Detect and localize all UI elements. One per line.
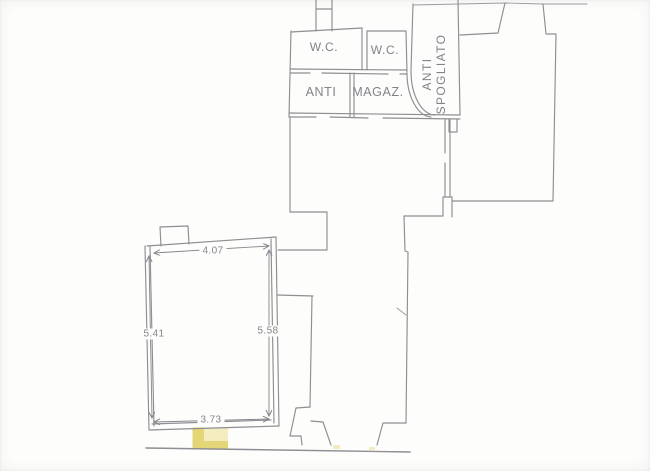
dimension-label-left-height: 5.41	[140, 329, 167, 340]
highlight-speck-right	[369, 447, 375, 450]
corridor-left-foot	[290, 407, 310, 445]
wc-divider-wall	[362, 28, 367, 70]
right-wing-chimney-left	[460, 3, 505, 35]
wc-left-top-wall	[291, 28, 362, 32]
spogliato-left-wall	[411, 4, 413, 70]
top-boundary-line	[413, 3, 587, 5]
room-label-magaz: MAGAZ.	[352, 85, 404, 99]
spogliato-right-wall	[458, 0, 460, 115]
door-swing-tick	[397, 308, 406, 315]
dimension-label-top-width: 4.07	[199, 246, 226, 257]
scanned-floor-plan: W.C. W.C. ANTI MAGAZ. ANTI SPOGLIATO 4.0…	[0, 0, 650, 471]
central-bottom-step	[278, 212, 327, 250]
dimension-label-bottom-width: 3.73	[197, 415, 224, 426]
cluster-left-wall	[289, 31, 291, 117]
floor-plan-drawing	[0, 0, 650, 471]
room-label-wc-left: W.C.	[310, 40, 338, 54]
corridor-left-wall	[277, 295, 313, 407]
entrance-highlight-glare	[204, 428, 228, 442]
highlight-speck-left	[333, 445, 340, 449]
room-label-anti: ANTI	[306, 85, 337, 99]
wc-bottom-wall	[290, 69, 407, 74]
room-label-anti-spogliato-line1: ANTI	[420, 34, 434, 115]
entrance-highlight	[193, 428, 376, 451]
corridor-left-foot-inner	[311, 421, 331, 445]
top-chimney-notch	[316, 0, 332, 31]
room-label-wc-right: W.C.	[371, 43, 399, 57]
room-label-anti-spogliato-line2: SPOGLIATO	[434, 34, 448, 115]
central-room-walls	[278, 117, 450, 250]
right-wing-step-wall	[404, 197, 452, 216]
right-wing-right-wall	[543, 4, 556, 201]
right-wing-bottom-wall	[452, 197, 553, 217]
corridor-right-wall	[377, 216, 408, 445]
room-label-anti-spogliato: ANTI SPOGLIATO	[420, 34, 448, 115]
dimension-label-right-height: 5.58	[254, 326, 281, 337]
